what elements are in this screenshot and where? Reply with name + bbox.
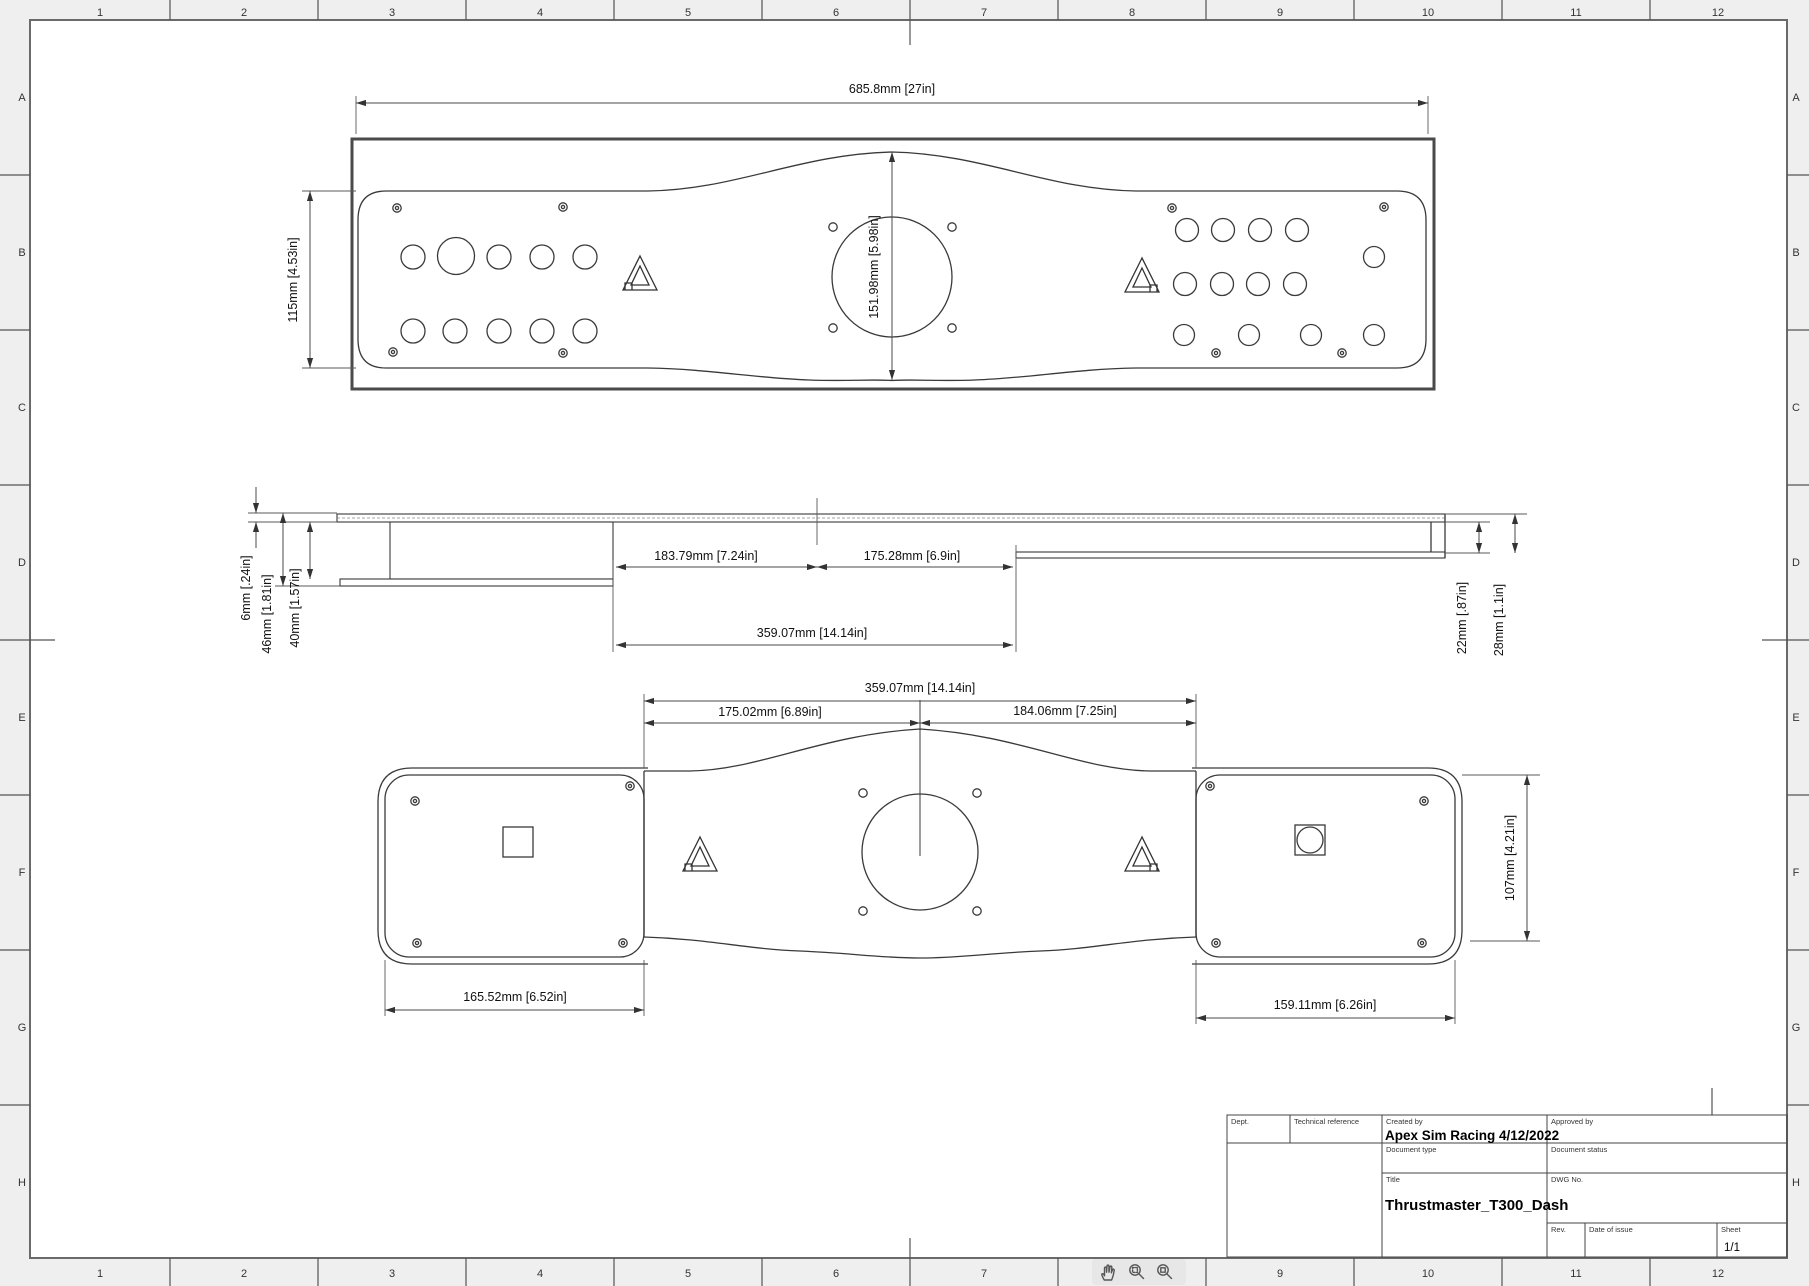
col-label: 3 (389, 1268, 395, 1280)
rev-label: Rev. (1551, 1225, 1566, 1234)
left-bracket (390, 522, 613, 579)
doc-type-label: Document type (1386, 1145, 1436, 1154)
row-label: G (1792, 1022, 1801, 1034)
svg-text:359.07mm [14.14in]: 359.07mm [14.14in] (757, 626, 868, 640)
sheet-value: 1/1 (1724, 1242, 1740, 1254)
svg-text:159.11mm [6.26in]: 159.11mm [6.26in] (1274, 998, 1377, 1012)
row-label: E (18, 712, 25, 724)
dept-label: Dept. (1231, 1117, 1249, 1126)
approved-by-label: Approved by (1551, 1117, 1593, 1126)
svg-text:183.79mm [7.24in]: 183.79mm [7.24in] (654, 549, 758, 563)
doc-status-label: Document status (1551, 1145, 1608, 1154)
tech-ref-label: Technical reference (1294, 1117, 1359, 1126)
svg-text:359.07mm [14.14in]: 359.07mm [14.14in] (865, 681, 976, 695)
col-label: 11 (1570, 1268, 1581, 1280)
row-label: D (18, 557, 26, 569)
col-label: 9 (1277, 7, 1283, 19)
svg-text:175.28mm [6.9in]: 175.28mm [6.9in] (864, 549, 961, 563)
col-label: 5 (685, 7, 691, 19)
title-value: Thrustmaster_T300_Dash (1385, 1197, 1568, 1214)
col-label: 12 (1712, 7, 1724, 19)
created-by-value: Apex Sim Racing 4/12/2022 (1385, 1128, 1559, 1143)
svg-text:107mm [4.21in]: 107mm [4.21in] (1503, 815, 1517, 901)
row-label: A (18, 92, 26, 104)
svg-text:685.8mm [27in]: 685.8mm [27in] (849, 82, 935, 96)
svg-text:40mm [1.57in]: 40mm [1.57in] (288, 568, 302, 647)
right-bracket (1016, 552, 1445, 558)
row-label: F (1793, 867, 1800, 879)
svg-text:6mm [.24in]: 6mm [.24in] (239, 555, 253, 620)
svg-text:28mm [1.1in]: 28mm [1.1in] (1492, 584, 1506, 656)
col-label: 12 (1712, 1268, 1724, 1280)
svg-text:115mm [4.53in]: 115mm [4.53in] (286, 237, 300, 322)
sheet-label: Sheet (1721, 1225, 1742, 1234)
title-label: Title (1386, 1175, 1400, 1184)
row-label: H (1792, 1177, 1800, 1189)
col-label: 9 (1277, 1268, 1283, 1280)
col-label: 7 (981, 7, 987, 19)
cad-viewer: 1 2 3 4 5 6 7 8 9 10 11 12 1 2 3 4 5 6 7… (0, 0, 1809, 1286)
col-label: 4 (537, 1268, 543, 1280)
col-label: 5 (685, 1268, 691, 1280)
col-label: 2 (241, 1268, 247, 1280)
row-label: C (18, 402, 26, 414)
dwg-no-label: DWG No. (1551, 1175, 1583, 1184)
row-label: C (1792, 402, 1800, 414)
svg-text:46mm [1.81in]: 46mm [1.81in] (260, 574, 274, 653)
col-label: 8 (1129, 7, 1135, 19)
col-label: 6 (833, 7, 839, 19)
view-toolbar (1092, 1259, 1186, 1285)
col-label: 3 (389, 7, 395, 19)
col-label: 2 (241, 7, 247, 19)
svg-text:175.02mm [6.89in]: 175.02mm [6.89in] (718, 705, 822, 719)
row-label: A (1792, 92, 1800, 104)
drawing-sheet: 1 2 3 4 5 6 7 8 9 10 11 12 1 2 3 4 5 6 7… (0, 0, 1809, 1286)
created-by-label: Created by (1386, 1117, 1423, 1126)
col-label: 10 (1422, 7, 1434, 19)
row-label: E (1792, 712, 1799, 724)
svg-text:151.98mm [5.98in]: 151.98mm [5.98in] (867, 215, 881, 319)
col-label: 4 (537, 7, 543, 19)
col-label: 6 (833, 1268, 839, 1280)
row-label: D (1792, 557, 1800, 569)
col-label: 1 (97, 7, 103, 19)
row-label: F (19, 867, 26, 879)
svg-text:22mm [.87in]: 22mm [.87in] (1455, 582, 1469, 654)
row-label: H (18, 1177, 26, 1189)
col-label: 11 (1570, 7, 1581, 19)
svg-text:184.06mm [7.25in]: 184.06mm [7.25in] (1013, 704, 1117, 718)
row-label: B (1792, 247, 1799, 259)
date-of-issue-label: Date of issue (1589, 1225, 1633, 1234)
row-label: G (18, 1022, 27, 1034)
svg-text:165.52mm [6.52in]: 165.52mm [6.52in] (463, 990, 567, 1004)
col-label: 1 (97, 1268, 103, 1280)
row-label: B (18, 247, 25, 259)
col-label: 7 (981, 1268, 987, 1280)
col-label: 10 (1422, 1268, 1434, 1280)
left-bracket-lip (340, 579, 613, 586)
